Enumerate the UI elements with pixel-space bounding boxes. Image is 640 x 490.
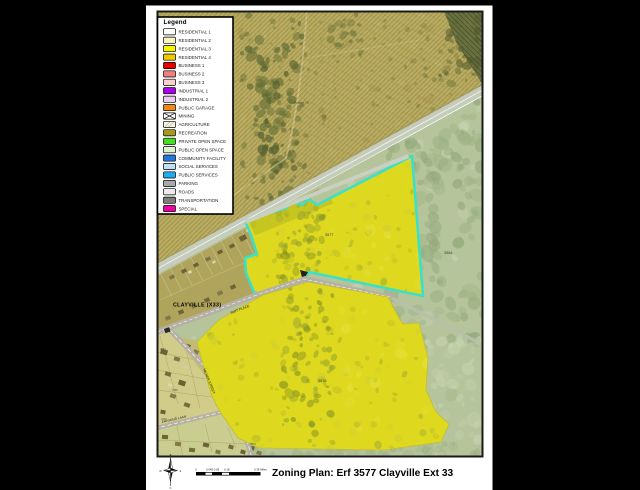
svg-text:COMMUNITY FACILITY: COMMUNITY FACILITY [179, 156, 226, 161]
svg-text:SOCIAL SERVICES: SOCIAL SERVICES [179, 164, 218, 169]
svg-text:Portion 79: Portion 79 [294, 101, 309, 105]
svg-text:PRIVATE OPEN SPACE: PRIVATE OPEN SPACE [179, 139, 227, 144]
svg-text:RESIDENTIAL 2: RESIDENTIAL 2 [179, 38, 212, 43]
svg-text:RESIDENTIAL 1: RESIDENTIAL 1 [179, 30, 212, 35]
svg-text:3569: 3569 [161, 417, 167, 421]
svg-text:S: S [170, 486, 172, 490]
svg-text:3576: 3576 [250, 442, 256, 446]
svg-text:RECREATION: RECREATION [179, 131, 207, 136]
svg-text:0.36 Miles: 0.36 Miles [254, 468, 267, 472]
svg-text:AGRICULTURE: AGRICULTURE [179, 122, 210, 127]
svg-text:3578: 3578 [318, 379, 326, 383]
svg-text:RESIDENTIAL 3: RESIDENTIAL 3 [179, 46, 212, 51]
svg-text:PARKING: PARKING [179, 181, 199, 186]
svg-text:3561: 3561 [160, 347, 166, 351]
svg-text:CLAYVILLE (X33): CLAYVILLE (X33) [173, 303, 221, 309]
svg-text:PUBLIC OPEN SPACE: PUBLIC OPEN SPACE [179, 147, 224, 152]
svg-text:BUSINESS 1: BUSINESS 1 [179, 63, 205, 68]
svg-text:MINING: MINING [179, 114, 195, 119]
svg-text:Zoning Plan: Erf 3577 Clayvill: Zoning Plan: Erf 3577 Clayville Ext 33 [272, 468, 454, 479]
svg-text:0.18: 0.18 [224, 468, 230, 472]
svg-text:ROADS: ROADS [179, 190, 195, 195]
svg-text:Legend: Legend [164, 19, 187, 26]
svg-text:PUBLIC SERVICES: PUBLIC SERVICES [179, 173, 218, 178]
svg-text:INDUSTRIAL 1: INDUSTRIAL 1 [179, 88, 209, 93]
svg-text:PUBLIC GARAGE: PUBLIC GARAGE [179, 105, 215, 110]
svg-text:RESIDENTIAL 4: RESIDENTIAL 4 [179, 55, 212, 60]
svg-text:0.045 0.09: 0.045 0.09 [206, 468, 220, 472]
svg-text:INDUSTRIAL 2: INDUSTRIAL 2 [179, 97, 209, 102]
svg-text:TRANSPORTATION: TRANSPORTATION [179, 198, 219, 203]
svg-text:N: N [170, 454, 172, 458]
svg-text:SPECIAL: SPECIAL [179, 206, 198, 211]
svg-text:E: E [180, 469, 182, 473]
svg-text:BUSINESS 2: BUSINESS 2 [179, 72, 205, 77]
svg-text:3577: 3577 [325, 233, 333, 237]
svg-text:BUSINESS 3: BUSINESS 3 [179, 80, 205, 85]
svg-text:3584: 3584 [444, 251, 452, 255]
svg-text:3565: 3565 [172, 388, 178, 392]
